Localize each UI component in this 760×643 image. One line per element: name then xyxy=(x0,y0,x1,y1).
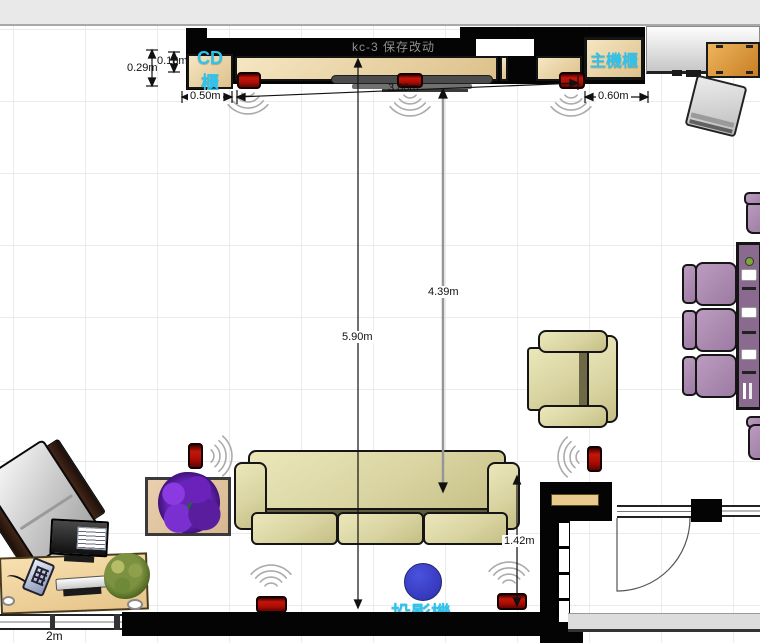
speaker-rear-right[interactable] xyxy=(497,593,527,610)
window-right-of-door xyxy=(722,505,760,517)
desk-chair-top-right[interactable] xyxy=(684,74,747,137)
projector[interactable] xyxy=(404,563,442,601)
main-unit-cabinet[interactable]: 主機櫃 xyxy=(584,37,644,80)
chair-seat xyxy=(695,354,737,398)
table-fork xyxy=(743,383,746,399)
phone-keypad xyxy=(31,566,49,587)
cd-cabinet-label: CD櫃 xyxy=(189,48,231,95)
dim-label-380: 3.80m xyxy=(388,82,419,94)
speaker-front-right[interactable] xyxy=(559,72,585,89)
dining-chair[interactable] xyxy=(682,354,738,398)
cd-cabinet[interactable]: CD櫃 xyxy=(187,54,233,89)
wall-opening xyxy=(476,39,534,56)
window-mullion xyxy=(50,614,55,630)
wall-bottom xyxy=(122,612,545,636)
dim-label-050: 0.50m xyxy=(188,90,223,102)
media-shelf-end xyxy=(500,56,508,81)
monitor-stand xyxy=(64,555,94,563)
armchair-seat xyxy=(527,347,593,411)
armchair[interactable] xyxy=(525,327,620,431)
sound-waves-icon xyxy=(558,437,579,477)
dining-chair[interactable] xyxy=(682,308,738,352)
speaker-side-left[interactable] xyxy=(188,443,203,469)
sound-waves-icon xyxy=(551,95,591,116)
door-leaf[interactable] xyxy=(617,505,691,518)
table-item-bowl xyxy=(745,257,754,266)
speaker-rear-left[interactable] xyxy=(256,596,287,613)
sofa[interactable] xyxy=(234,448,522,547)
drawer-handle xyxy=(716,45,723,48)
monitor-label xyxy=(77,527,107,550)
keyboard-base xyxy=(63,587,101,597)
dim-label-060: 0.60m xyxy=(596,90,631,102)
wall-note-label: kc-3 保存改动 xyxy=(352,38,472,55)
floor-plan-canvas: kc-3 保存改动 CD櫃 主機櫃 xyxy=(0,0,760,643)
window-left xyxy=(0,614,122,630)
table-cutlery xyxy=(742,287,756,290)
main-unit-cabinet-label: 主機櫃 xyxy=(590,47,638,71)
sofa-cushion xyxy=(423,512,508,545)
dim-label-439: 4.39m xyxy=(426,286,461,298)
table-plate xyxy=(741,307,757,318)
sound-waves-icon xyxy=(228,93,268,114)
cup xyxy=(2,596,15,606)
cup xyxy=(127,599,143,610)
dining-chair[interactable] xyxy=(682,262,738,306)
table-plate xyxy=(741,349,757,360)
dim-label-029: 0.29m xyxy=(127,62,158,74)
armchair-arm xyxy=(538,330,608,353)
partition-hatched xyxy=(556,520,570,622)
table-knife xyxy=(749,383,752,399)
sound-waves-icon xyxy=(390,95,430,116)
drawer-handle xyxy=(716,71,723,74)
dining-table[interactable] xyxy=(736,242,760,410)
table-cutlery xyxy=(742,371,756,374)
sofa-cushion xyxy=(337,512,424,545)
sofa-cushion xyxy=(251,512,338,545)
chair-seat xyxy=(695,262,737,306)
dining-chair-bottom[interactable] xyxy=(748,424,760,460)
drawer-handle xyxy=(746,45,753,48)
table-plate xyxy=(741,269,757,281)
keyboard[interactable] xyxy=(55,575,110,599)
door-swing-arc xyxy=(617,518,690,591)
sound-waves-icon xyxy=(211,436,232,476)
speaker-side-right[interactable] xyxy=(587,446,602,472)
counter-item xyxy=(672,70,682,76)
table-cutlery xyxy=(742,331,756,334)
glass-wall-bottom-right xyxy=(568,613,760,632)
flower-planter[interactable] xyxy=(145,477,231,536)
speaker-front-left[interactable] xyxy=(237,72,261,89)
dining-chair-top-back xyxy=(744,192,760,205)
armchair-arm xyxy=(538,405,608,428)
niche-shelf[interactable] xyxy=(551,494,599,506)
monitor[interactable] xyxy=(49,518,113,565)
dim-label-018: 0.18m xyxy=(157,55,188,67)
sound-waves-icon xyxy=(251,565,291,586)
door-post xyxy=(691,499,722,522)
dim-label-142: 1.42m xyxy=(502,535,537,547)
chair-seat xyxy=(695,308,737,352)
sofa-back xyxy=(248,450,506,510)
window-mullion xyxy=(114,614,120,630)
drawer-handle xyxy=(746,71,753,74)
flowers xyxy=(154,472,224,540)
dim-label-2m: 2m xyxy=(46,629,63,643)
drawer-cabinet[interactable] xyxy=(706,42,760,78)
corridor-band xyxy=(0,0,760,26)
wall-right-vertical xyxy=(540,521,557,643)
dim-label-590: 5.90m xyxy=(340,331,375,343)
dining-chair-top[interactable] xyxy=(746,200,760,234)
sound-waves-icon xyxy=(489,562,529,583)
